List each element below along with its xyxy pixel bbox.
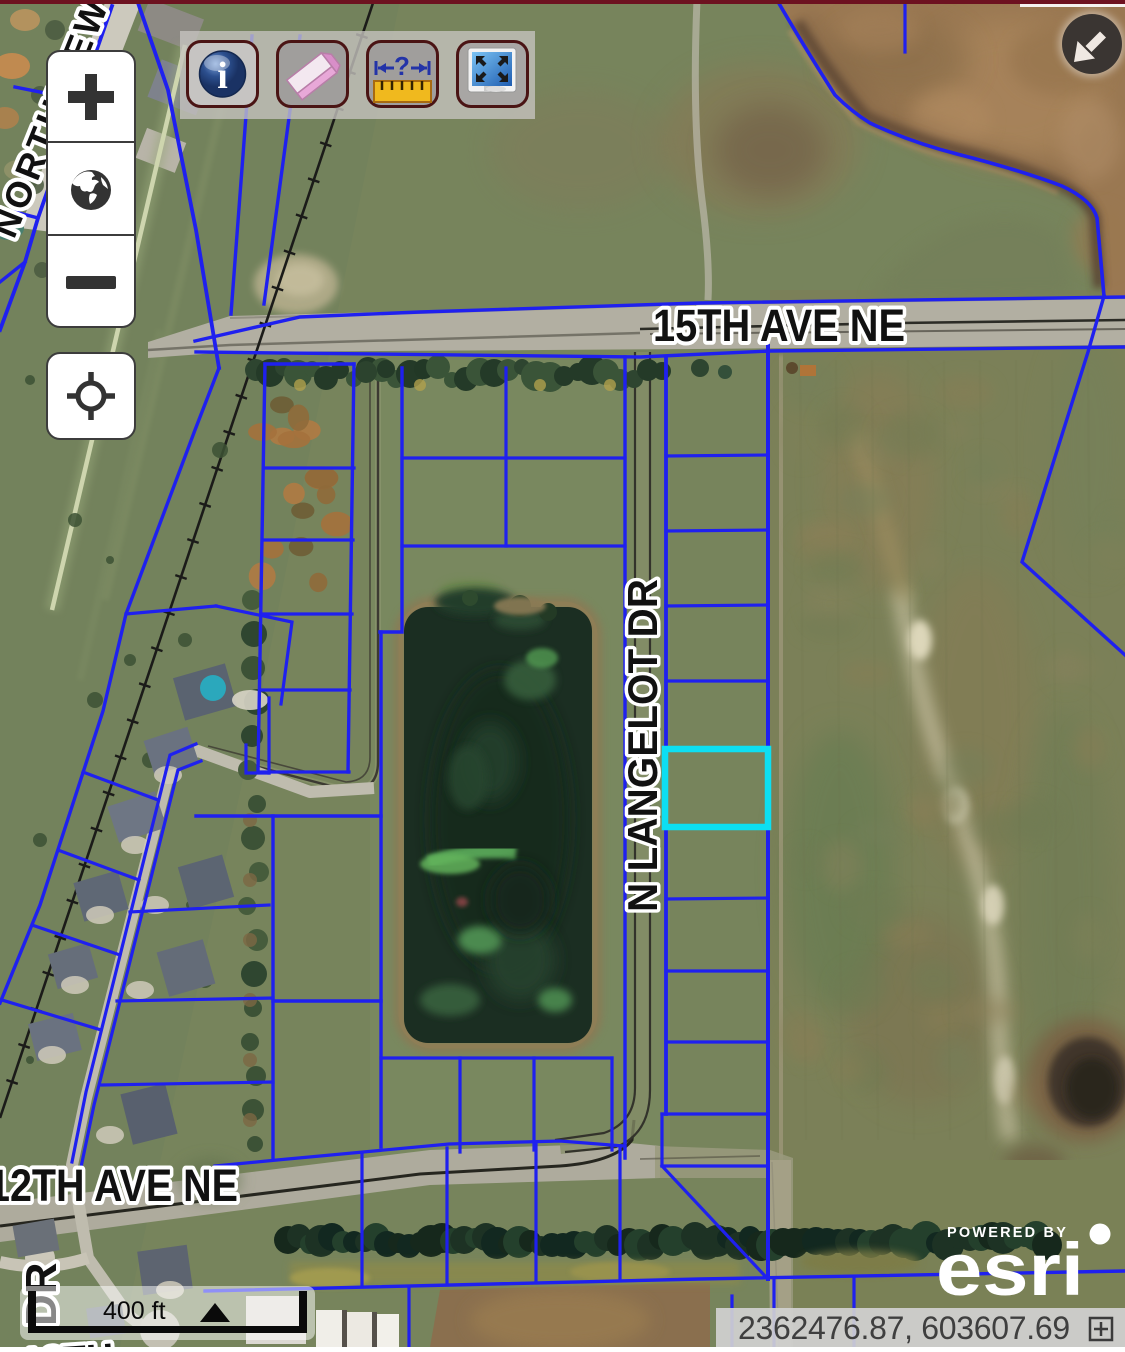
svg-text:?: ? bbox=[394, 51, 410, 81]
svg-text:N LANGELOT DR: N LANGELOT DR bbox=[619, 579, 666, 912]
svg-text:esri: esri bbox=[936, 1228, 1084, 1311]
svg-text:400 ft: 400 ft bbox=[103, 1297, 166, 1325]
svg-text:i: i bbox=[217, 55, 228, 97]
svg-text:12TH AVE NE: 12TH AVE NE bbox=[0, 1160, 238, 1211]
svg-text:15TH AVE NE: 15TH AVE NE bbox=[653, 300, 905, 351]
